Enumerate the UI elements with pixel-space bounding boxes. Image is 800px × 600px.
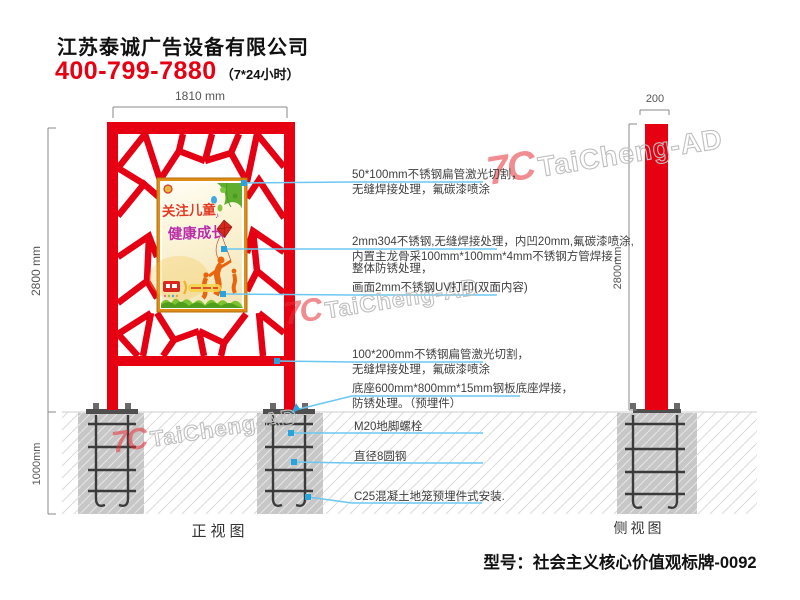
annotation-cabinet-line3: 整体防锈处理，	[352, 263, 433, 276]
annotation-concrete-cage: C25混凝土地笼预埋件式安装.	[354, 491, 505, 504]
dim-foundation-depth: 1000mm	[31, 443, 43, 486]
service-hours: （7*24小时）	[221, 67, 300, 82]
front-view-label: 正视图	[191, 523, 248, 540]
annotation-flat-tube-bottom-line1: 100*200mm不锈钢扁管激光切割，	[352, 349, 529, 362]
model-number: 型号：社会主义核心价值观标牌-0092	[450, 549, 790, 573]
company-name: 江苏泰诚广告设备有限公司	[57, 31, 309, 60]
music-note-icon: ♪	[215, 211, 219, 220]
annotation-anchor-bolt: M20地脚螺栓	[354, 421, 422, 434]
annotation-cabinet-line1: 2mm304不锈钢,无缝焊接处理，内凹20mm,氟碳漆喷涂,	[352, 236, 634, 249]
side-view-label: 侧视图	[614, 520, 665, 536]
annotation-round-steel: 直径8圆钢	[354, 451, 406, 464]
dim-side-width: 200	[646, 93, 664, 105]
contact-row: 400-799-7880（7*24小时）	[55, 57, 299, 86]
signage-technical-drawing: 关注儿童 ♪ 健康成长	[0, 0, 800, 600]
poster: 关注儿童 ♪ 健康成长	[149, 178, 247, 312]
dim-front-height: 2800 mm	[29, 246, 43, 296]
annotation-uv-print: 画面2mm不锈钢UV打印(双面内容)	[352, 282, 528, 295]
annotation-flat-tube-bottom-line2: 无缝焊接处理，氟碳漆喷涂	[352, 364, 490, 377]
hotline-number: 400-799-7880	[55, 57, 217, 85]
side-view-column	[645, 124, 668, 410]
right-post	[284, 122, 295, 410]
annotation-base-plate-line2: 防锈处理。（预埋件）	[352, 398, 461, 411]
annotation-base-plate-line1: 底座600mm*800mm*15mm钢板底座焊接，	[352, 383, 573, 396]
annotation-flat-tube-top-line2: 无缝焊接处理，氟碳漆喷涂	[352, 184, 490, 197]
poster-title-line1: 关注儿童	[162, 201, 217, 219]
bottom-rail	[107, 356, 295, 366]
poster-emblem	[164, 185, 172, 193]
top-rail	[107, 122, 295, 134]
annotation-flat-tube-top-line1: 50*100mm不锈钢扁管激光切割，	[352, 169, 523, 182]
left-post	[107, 122, 118, 410]
poster-title-line2: 健康成长	[168, 223, 227, 243]
dim-front-width: 1810 mm	[175, 89, 225, 103]
